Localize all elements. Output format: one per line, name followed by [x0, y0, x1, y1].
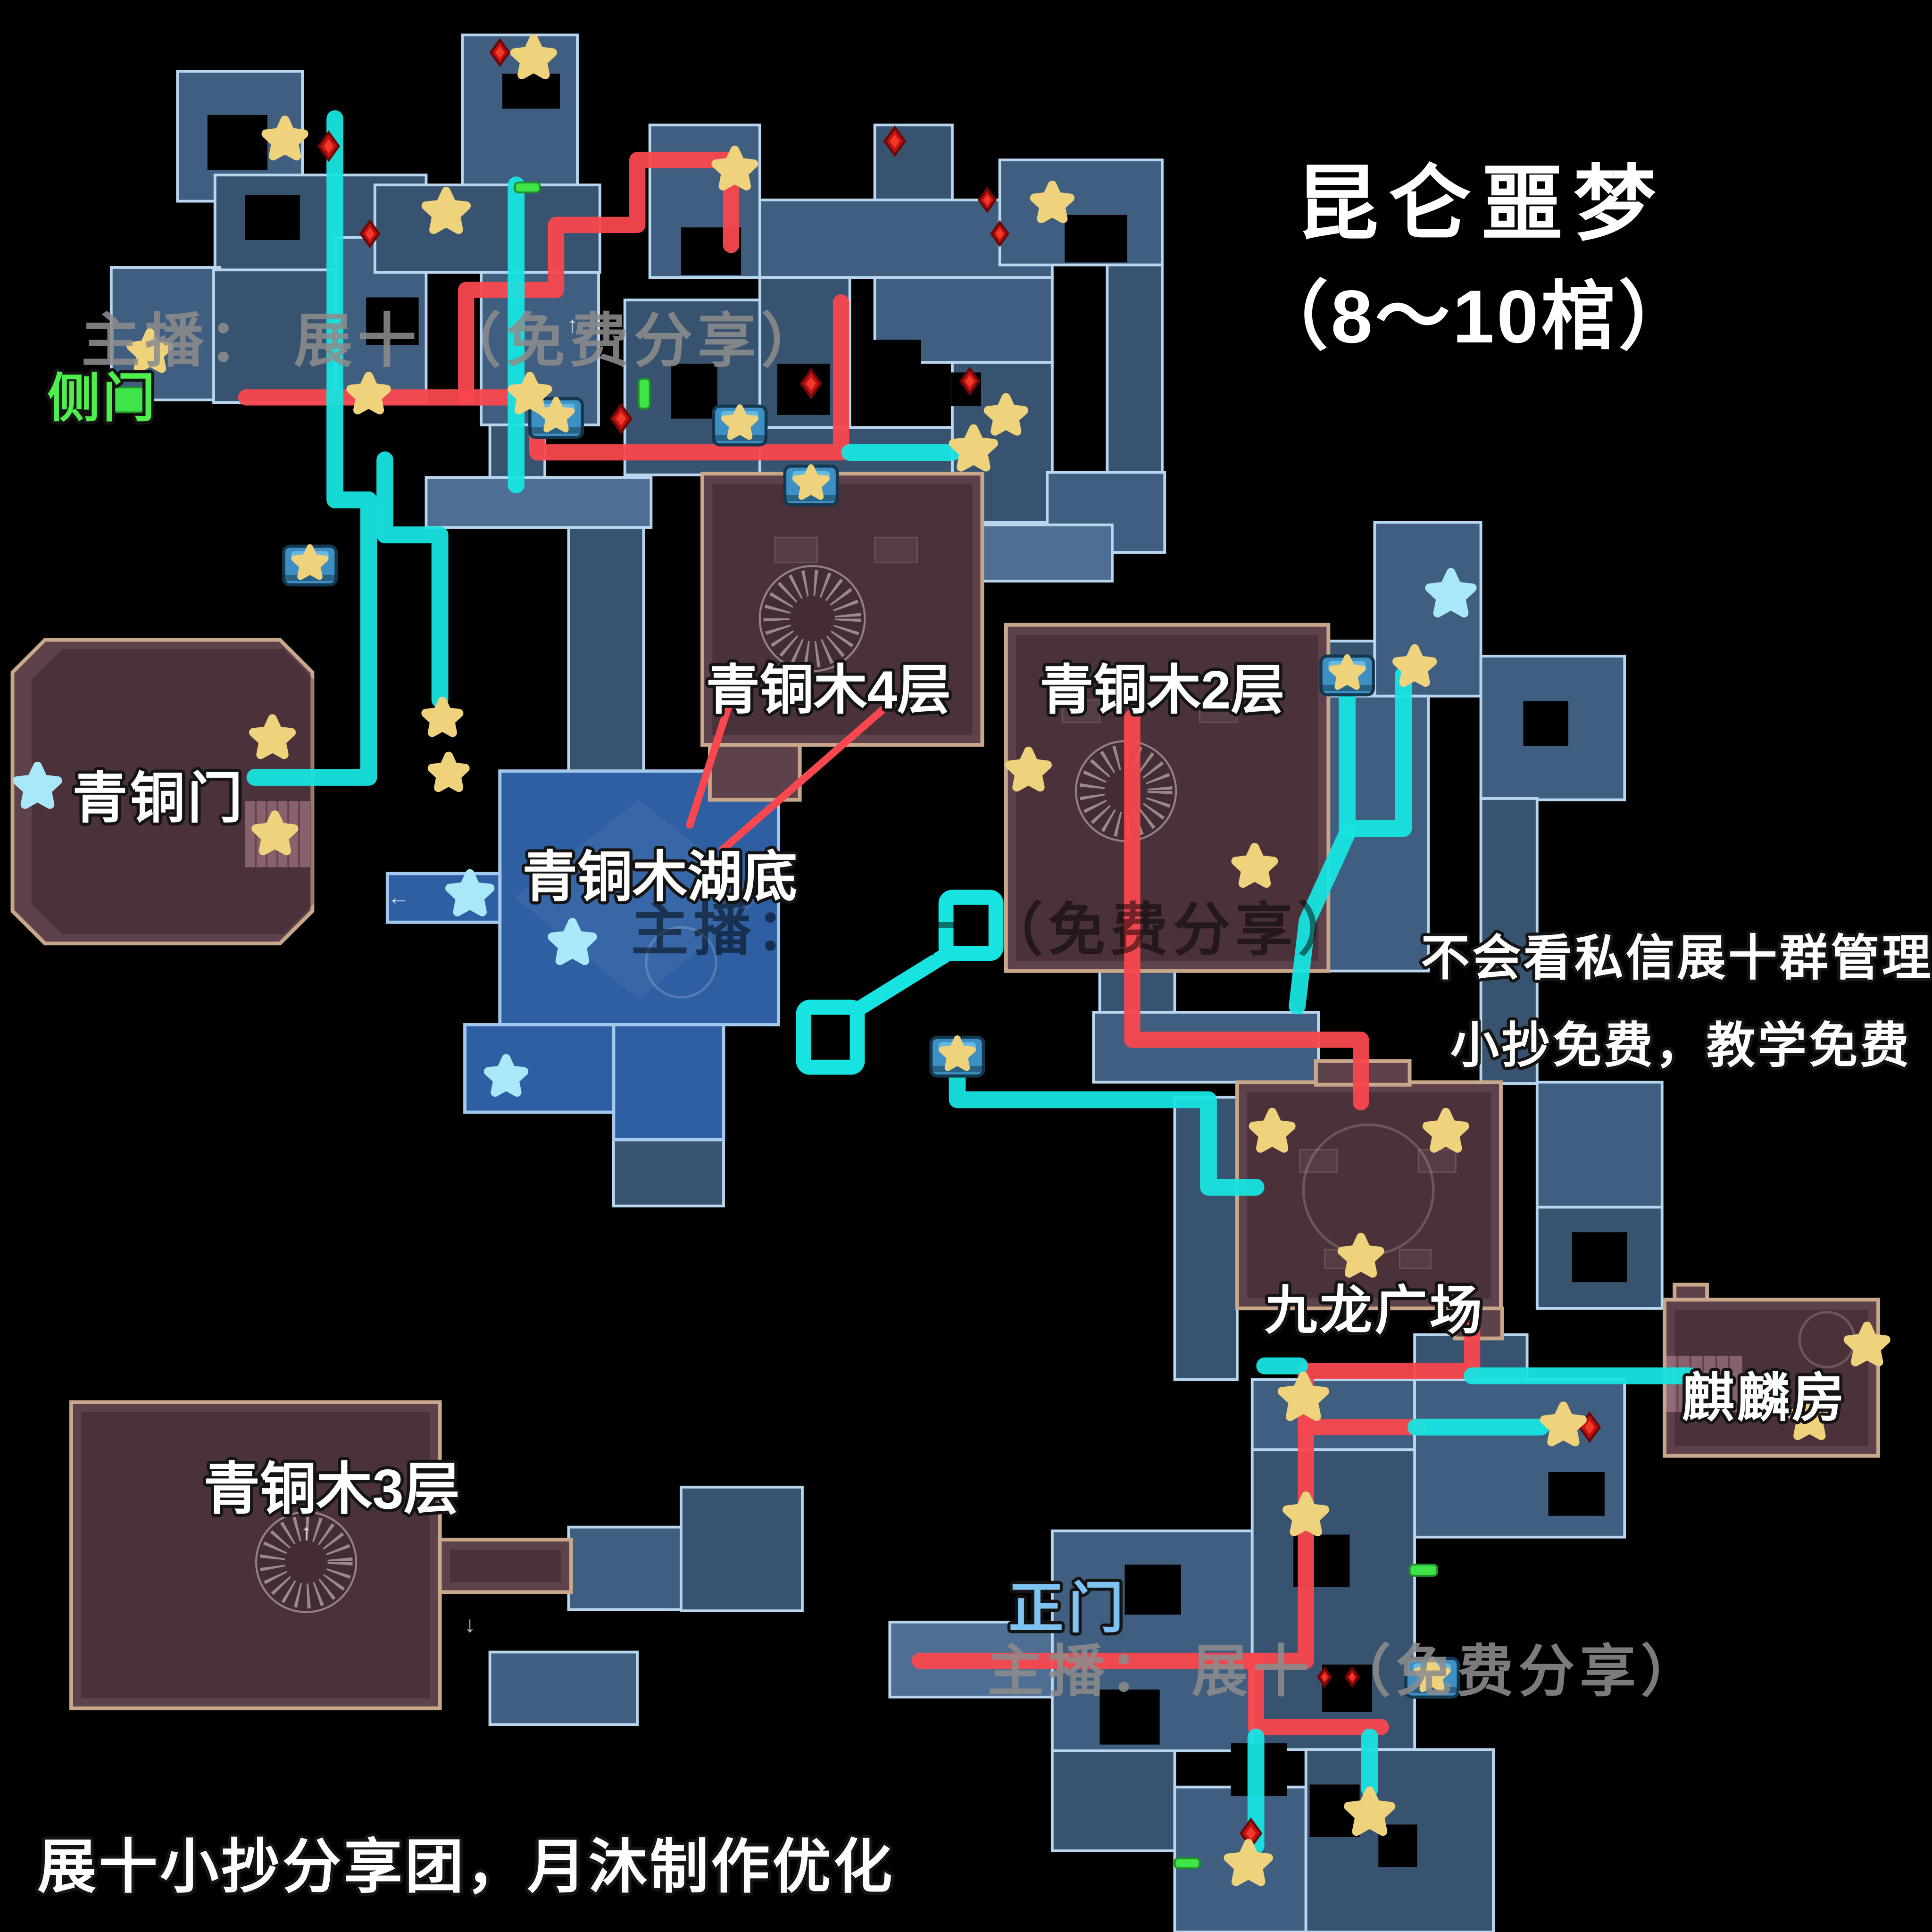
chest-icon-base — [931, 1066, 983, 1072]
chest-icon-base — [283, 575, 336, 581]
map-room — [568, 1527, 683, 1610]
lakebed-room — [614, 1025, 724, 1140]
map-room — [1107, 265, 1162, 477]
chest-icon-base — [785, 495, 837, 501]
bronze-wood-3f-arm-shade — [450, 1549, 561, 1582]
room-decor — [1399, 1249, 1431, 1268]
room-decor — [875, 537, 917, 562]
direction-arrow: ↑ — [300, 1520, 312, 1545]
map-title-line1: 昆仑噩梦 — [1296, 158, 1666, 250]
bronze-wood-3f-shade — [81, 1412, 430, 1699]
credit-text: 展十小抄分享团，月沐制作优化 — [37, 1834, 894, 1900]
map-room — [1537, 1082, 1662, 1207]
green-door-marker — [515, 183, 540, 192]
room-decor — [1299, 1149, 1337, 1172]
direction-arrow: ↓ — [464, 1612, 475, 1637]
room-hole — [245, 195, 300, 240]
label-bronze-wood-3f: 青铜木3层 — [204, 1458, 460, 1521]
map-canvas: ←↑↓↑昆仑噩梦（8～10棺）主播： 展十 （免费分享）主播： 展十 （免费分享… — [0, 0, 1932, 1932]
note-line1: 不会看私信展十群管理 — [1421, 931, 1932, 985]
label-qilin-room: 麒麟房 — [1682, 1368, 1847, 1427]
label-nine-dragon-plaza: 九龙广场 — [1265, 1281, 1484, 1340]
map-room — [1052, 1751, 1175, 1851]
green-door-marker — [639, 379, 650, 409]
chest-icon-base — [1321, 685, 1373, 691]
watermark-bottom: 主播： 展十 （免费分享） — [987, 1641, 1702, 1703]
map-room — [490, 1652, 638, 1725]
qilin-tab — [1674, 1285, 1707, 1300]
watermark-top: 主播： 展十 （免费分享） — [81, 308, 825, 374]
map-room — [568, 527, 643, 772]
map-room — [1252, 1380, 1415, 1449]
room-hole — [867, 340, 921, 400]
label-side-gate: 侧门 — [48, 368, 158, 427]
note-line2: 小抄免费，教学免费 — [1450, 1018, 1912, 1073]
label-bronze-wood-4f: 青铜木4层 — [706, 660, 951, 720]
map-stage: ←↑↓↑昆仑噩梦（8～10棺）主播： 展十 （免费分享）主播： 展十 （免费分享… — [0, 0, 1932, 1932]
label-main-gate: 正门 — [1008, 1577, 1128, 1639]
green-door-marker — [1410, 1565, 1437, 1576]
map-title-line2: （8～10棺） — [1253, 275, 1696, 358]
room-hole — [208, 115, 267, 170]
room-hole — [1124, 1565, 1181, 1615]
room-decor — [775, 537, 817, 562]
room-hole — [502, 74, 560, 108]
chest-icon-base — [530, 427, 582, 433]
map-room — [426, 477, 651, 527]
map-room — [681, 1487, 802, 1611]
room-decor — [1418, 1149, 1456, 1172]
room-hole — [1524, 701, 1568, 746]
room-hole — [1065, 215, 1127, 263]
direction-arrow: ← — [387, 885, 410, 910]
room-hole — [1549, 1472, 1605, 1516]
room-hole — [1572, 1232, 1627, 1282]
map-room — [982, 525, 1112, 581]
label-bronze-gate: 青铜门 — [73, 767, 245, 829]
green-door-marker — [1174, 1858, 1199, 1868]
label-bronze-wood-lakebed: 青铜木湖底 — [522, 846, 797, 908]
map-room — [875, 125, 952, 200]
label-bronze-wood-2f: 青铜木2层 — [1040, 660, 1284, 720]
map-room — [614, 1137, 724, 1206]
chest-icon-base — [714, 435, 766, 441]
